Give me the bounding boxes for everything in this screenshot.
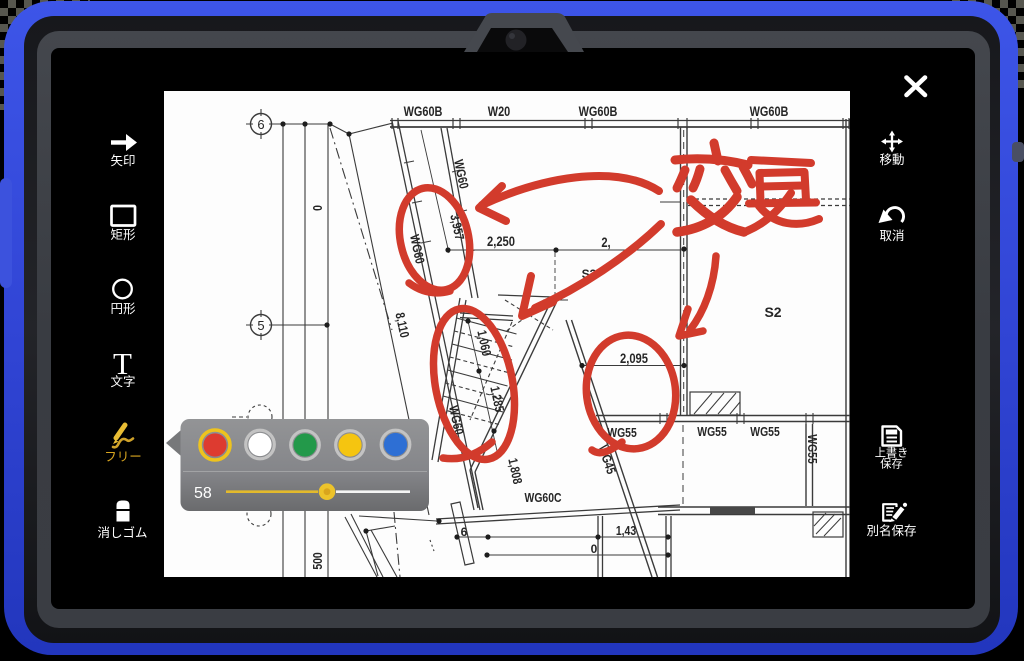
svg-text:WG55: WG55 — [750, 425, 780, 439]
svg-text:6: 6 — [257, 117, 264, 132]
svg-text:文字: 文字 — [110, 374, 135, 389]
svg-text:0: 0 — [311, 205, 325, 211]
svg-text:円形: 円形 — [110, 302, 136, 316]
svg-text:WG55: WG55 — [697, 425, 727, 439]
svg-text:移動: 移動 — [879, 153, 904, 167]
svg-text:保存: 保存 — [880, 457, 902, 471]
svg-text:矩形: 矩形 — [110, 228, 136, 242]
svg-text:S2: S2 — [764, 304, 781, 320]
svg-text:WG60C: WG60C — [525, 491, 562, 505]
svg-text:取消: 取消 — [879, 229, 904, 243]
svg-text:2,: 2, — [601, 235, 610, 250]
svg-text:2,250: 2,250 — [487, 234, 515, 249]
svg-text:1,43: 1,43 — [616, 524, 637, 538]
svg-text:WG55: WG55 — [805, 434, 819, 464]
svg-text:WG60B: WG60B — [404, 104, 443, 120]
svg-text:矢印: 矢印 — [110, 154, 135, 168]
svg-text:フリー: フリー — [104, 450, 142, 464]
svg-text:5: 5 — [257, 318, 264, 333]
svg-text:0: 0 — [591, 542, 598, 556]
svg-text:W20: W20 — [488, 104, 510, 120]
svg-text:別名保存: 別名保存 — [866, 523, 916, 538]
svg-text:58: 58 — [194, 485, 212, 502]
svg-text:500: 500 — [311, 552, 325, 570]
svg-text:WG60B: WG60B — [579, 104, 618, 120]
svg-text:2,095: 2,095 — [620, 351, 648, 366]
svg-text:WG60B: WG60B — [750, 104, 789, 120]
svg-text:上書き: 上書き — [875, 446, 909, 460]
svg-text:6: 6 — [461, 525, 468, 539]
svg-text:消しゴム: 消しゴム — [97, 525, 147, 540]
